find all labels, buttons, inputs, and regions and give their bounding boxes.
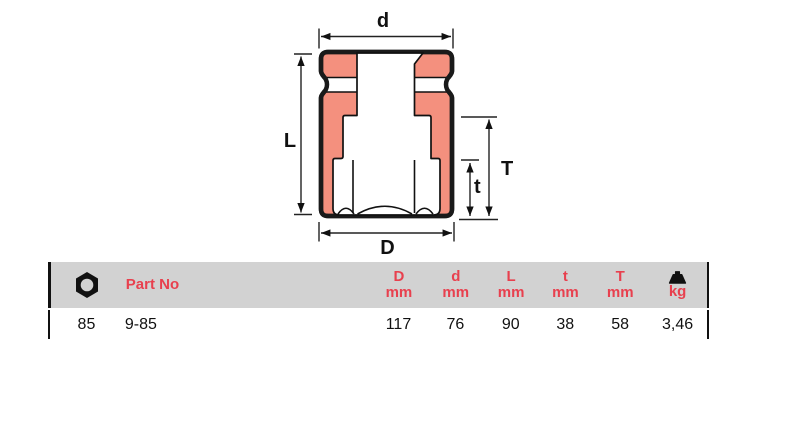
cell-weight-kg: 3,46	[648, 316, 707, 334]
dimension-T	[459, 117, 498, 220]
col-header-T-dim: T	[592, 269, 648, 285]
col-header-t-unit: mm	[539, 285, 593, 301]
col-header-weight: kg	[648, 270, 707, 300]
cell-D-mm: 117	[370, 316, 428, 334]
cell-T-mm: 58	[592, 316, 648, 334]
table-row: 85 9-85 117 76 90 38 58 3,46	[48, 310, 709, 339]
col-header-D-unit: mm	[370, 285, 428, 301]
socket-body	[321, 52, 452, 216]
cell-t-mm: 38	[538, 316, 592, 334]
dim-label-L: L	[284, 130, 296, 152]
col-header-L-unit: mm	[484, 285, 539, 301]
socket-cross-section-diagram: d L T t D	[0, 0, 789, 262]
size-column-header	[51, 271, 124, 299]
spec-table-header: Part No D mm d mm L mm t mm T mm	[48, 262, 709, 308]
dim-label-T: T	[501, 158, 513, 180]
col-header-t-dim: t	[539, 269, 593, 285]
weight-unit-label: kg	[669, 284, 687, 300]
spec-table: Part No D mm d mm L mm t mm T mm	[48, 262, 709, 339]
col-header-D-dim: D	[370, 269, 428, 285]
cell-part-no: 9-85	[123, 316, 370, 334]
catalog-page: d L T t D	[0, 0, 789, 428]
weight-icon	[667, 270, 688, 284]
cell-L-mm: 90	[483, 316, 538, 334]
col-header-L-dim: L	[484, 269, 539, 285]
cell-d-mm: 76	[427, 316, 483, 334]
col-header-T-unit: mm	[592, 285, 648, 301]
dim-label-d: d	[377, 10, 389, 32]
col-header-T: T mm	[592, 269, 648, 301]
col-header-D: D mm	[370, 269, 428, 301]
hex-nut-icon	[74, 271, 100, 299]
dimension-L	[294, 54, 312, 215]
dim-label-D: D	[380, 237, 394, 259]
col-header-d: d mm	[428, 269, 484, 301]
col-header-L: L mm	[484, 269, 539, 301]
cell-size: 85	[50, 316, 123, 334]
col-header-t: t mm	[539, 269, 593, 301]
part-no-header: Part No	[124, 277, 370, 293]
col-header-d-unit: mm	[428, 285, 484, 301]
col-header-d-dim: d	[428, 269, 484, 285]
dim-label-t: t	[474, 176, 481, 198]
